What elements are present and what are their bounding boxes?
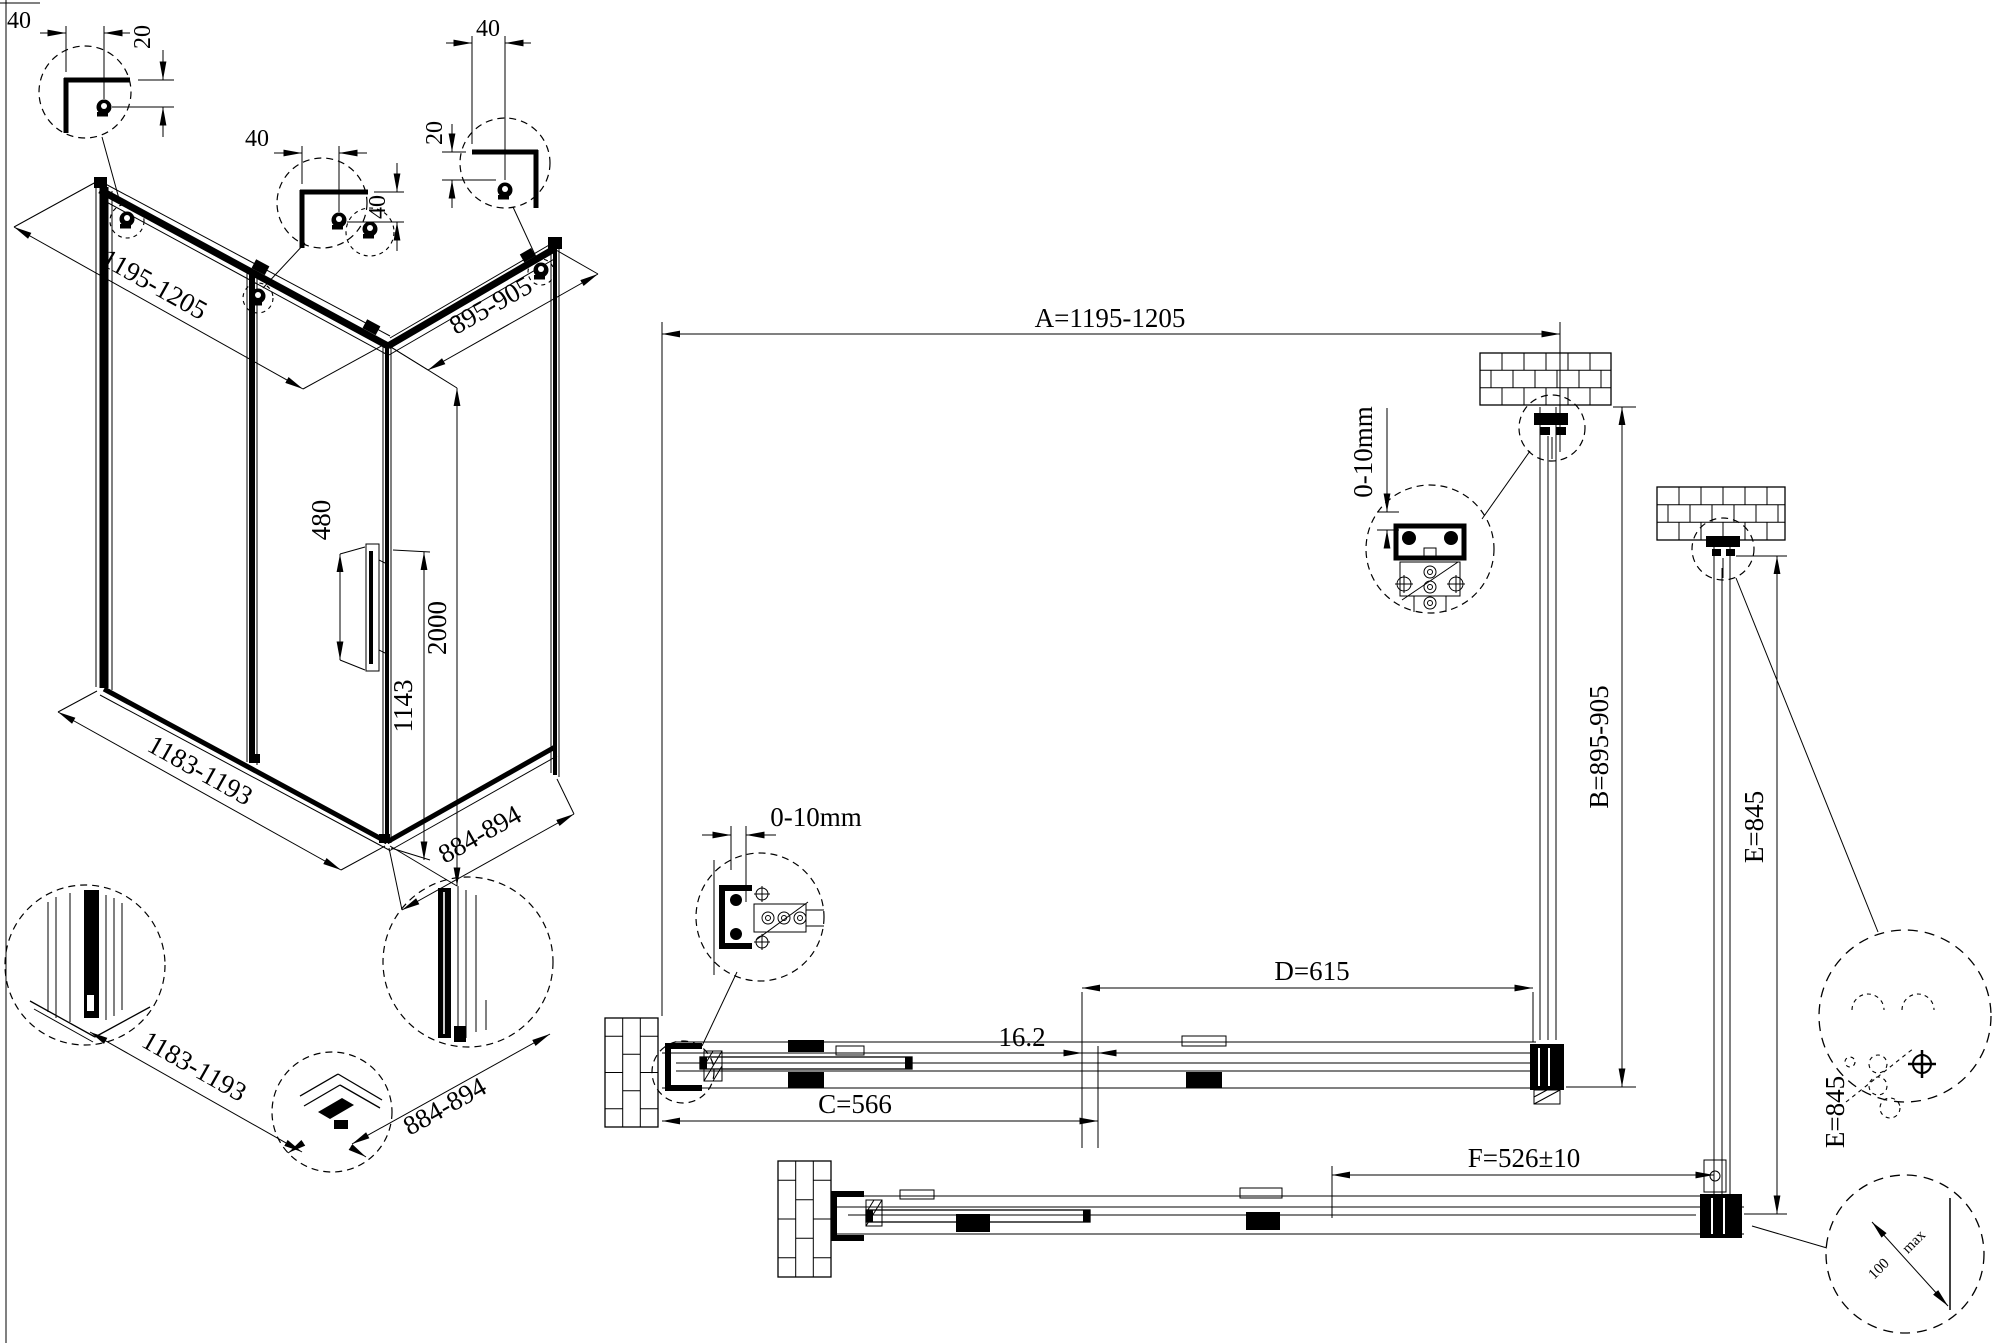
dim-label-detail-a-width: 40 [7, 8, 31, 34]
detail-circle-bottom-left-2 [272, 1052, 392, 1172]
track-assembly-1 [662, 1036, 1564, 1104]
leader-corner-detail [1752, 1226, 1827, 1248]
dim-label-iso-lower-height: 1143 [388, 680, 418, 733]
dim-label-detail-b-height: 40 [365, 195, 391, 219]
dim-label-detail-c-width: 40 [476, 16, 500, 42]
dim-label-plan-b: B=895-905 [1584, 685, 1614, 808]
door-handle [366, 544, 385, 671]
wall-mid-right [1657, 487, 1785, 540]
wall-left-track1 [605, 1018, 658, 1127]
detail-circle-corner-adjust: 100 max [1826, 1175, 1984, 1333]
track-assembly-2 [778, 1160, 1744, 1277]
wall-joint-circle-left [652, 1041, 714, 1103]
dim-label-plan-f: F=526±10 [1468, 1143, 1581, 1173]
dim-label-bottom-front-width: 1183-1193 [137, 1025, 252, 1108]
plan-view: A=1195-1205 [605, 303, 1991, 1333]
side-panel-far-right [1714, 542, 1730, 1230]
detail-circle-bottom-left-3 [383, 877, 553, 1047]
wall-top-right [1480, 353, 1611, 405]
leader-bracket-detail [1736, 578, 1878, 932]
detail-circle-top-left: 40 20 [7, 8, 174, 206]
side-panel-right [1540, 407, 1556, 1040]
dim-label-corner-unit: max [1899, 1227, 1929, 1257]
technical-drawing-canvas: 40 20 40 40 20 4 [0, 0, 1993, 1343]
dim-label-plan-d: D=615 [1274, 956, 1349, 986]
wall-gap-dim-top: 0-10mm [1348, 406, 1399, 548]
dim-label-plan-c: C=566 [818, 1089, 892, 1119]
dim-label-iso-height: 2000 [422, 601, 452, 655]
drawing-frame [0, 0, 40, 1343]
drawing-page: 40 20 40 40 20 4 [0, 0, 1993, 1343]
detail-circle-left-track: 0-10mm [696, 802, 862, 1046]
detail-circle-top-track [1366, 485, 1494, 613]
dim-label-bottom-side-depth: 884-894 [398, 1071, 492, 1141]
dim-label-iso-top-width: 1195-1205 [96, 243, 212, 326]
detail-circle-top-right: 20 40 [422, 16, 550, 259]
dim-label-detail-a-height: 20 [130, 25, 156, 49]
leader-top-detail [1482, 451, 1530, 519]
dim-label-corner-value: 100 [1866, 1256, 1893, 1283]
detail-circle-bottom-left-1 [5, 885, 165, 1045]
detail-circle-top-mid: 40 40 [245, 126, 404, 288]
dim-label-wall-gap-top: 0-10mm [1348, 406, 1378, 498]
dim-label-iso-handle: 480 [306, 500, 336, 541]
dim-label-plan-a: A=1195-1205 [1035, 303, 1186, 333]
dim-label-plan-overlap: 16.2 [998, 1022, 1045, 1052]
dim-label-detail-b-width: 40 [245, 126, 269, 152]
dim-label-detail-c-height: 20 [422, 121, 448, 145]
dim-label-wall-gap-left: 0-10mm [770, 802, 862, 832]
detail-circle-bracket: E=845 [1819, 930, 1991, 1148]
dim-label-plan-e-right: E=845 [1820, 1076, 1850, 1148]
dim-label-plan-e: E=845 [1739, 791, 1769, 863]
bottom-detail-dimensions: 1183-1193 884-894 [90, 1025, 550, 1152]
